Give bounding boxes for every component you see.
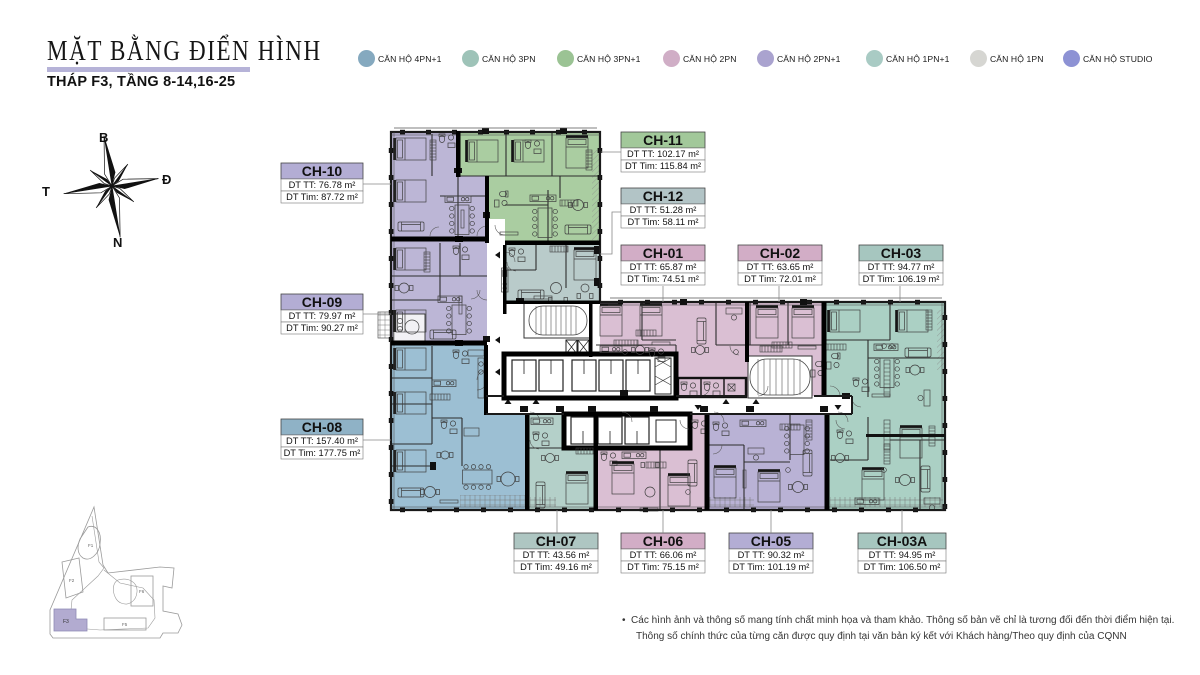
svg-text:DT TT: 94.77 m²: DT TT: 94.77 m² — [868, 262, 935, 272]
svg-text:DT TT: 79.97 m²: DT TT: 79.97 m² — [289, 311, 356, 321]
svg-text:DT TT: 76.78 m²: DT TT: 76.78 m² — [289, 180, 356, 190]
svg-text:DT Tim: 115.84 m²: DT Tim: 115.84 m² — [625, 161, 701, 171]
svg-text:DT Tim: 75.15 m²: DT Tim: 75.15 m² — [627, 562, 699, 572]
svg-text:DT Tim: 87.72 m²: DT Tim: 87.72 m² — [286, 192, 358, 202]
svg-text:N: N — [113, 235, 122, 250]
svg-text:CH-10: CH-10 — [302, 163, 343, 179]
svg-text:DT TT: 102.17 m²: DT TT: 102.17 m² — [627, 149, 699, 159]
svg-text:CH-03A: CH-03A — [877, 533, 928, 549]
svg-text:CH-06: CH-06 — [643, 533, 684, 549]
svg-text:B: B — [99, 130, 108, 145]
svg-text:CH-03: CH-03 — [881, 245, 922, 261]
svg-text:DT Tim: 101.19 m²: DT Tim: 101.19 m² — [733, 562, 810, 572]
svg-text:Đ: Đ — [162, 172, 171, 187]
svg-text:F2: F2 — [69, 578, 75, 583]
svg-text:F1: F1 — [88, 543, 94, 548]
svg-text:DT TT: 51.28 m²: DT TT: 51.28 m² — [630, 205, 697, 215]
svg-text:T: T — [42, 184, 50, 199]
svg-text:F6: F6 — [139, 589, 145, 594]
svg-text:DT Tim: 106.19 m²: DT Tim: 106.19 m² — [863, 274, 940, 284]
svg-text:CH-01: CH-01 — [643, 245, 684, 261]
svg-text:DT Tim: 58.11 m²: DT Tim: 58.11 m² — [628, 217, 699, 227]
svg-text:DT TT: 66.06 m²: DT TT: 66.06 m² — [630, 550, 697, 560]
svg-text:CH-07: CH-07 — [536, 533, 577, 549]
svg-text:DT Tim: 49.16 m²: DT Tim: 49.16 m² — [520, 562, 592, 572]
svg-text:F3: F3 — [63, 619, 69, 625]
svg-text:DT TT: 94.95 m²: DT TT: 94.95 m² — [869, 550, 936, 560]
svg-text:DT TT: 65.87 m²: DT TT: 65.87 m² — [630, 262, 697, 272]
svg-text:DT TT: 157.40 m²: DT TT: 157.40 m² — [286, 436, 358, 446]
svg-text:CH-12: CH-12 — [643, 188, 684, 204]
svg-text:DT Tim: 177.75 m²: DT Tim: 177.75 m² — [284, 448, 361, 458]
svg-text:CH-05: CH-05 — [751, 533, 792, 549]
svg-text:F5: F5 — [122, 622, 128, 627]
svg-text:DT Tim: 106.50 m²: DT Tim: 106.50 m² — [864, 562, 941, 572]
svg-text:CH-09: CH-09 — [302, 294, 343, 310]
svg-text:DT Tim: 74.51 m²: DT Tim: 74.51 m² — [627, 274, 699, 284]
svg-text:CH-11: CH-11 — [643, 132, 683, 148]
svg-text:DT TT: 90.32 m²: DT TT: 90.32 m² — [738, 550, 805, 560]
svg-text:DT Tim: 90.27 m²: DT Tim: 90.27 m² — [286, 323, 358, 333]
svg-text:CH-02: CH-02 — [760, 245, 801, 261]
svg-text:DT TT: 43.56 m²: DT TT: 43.56 m² — [523, 550, 590, 560]
svg-text:DT TT: 63.65 m²: DT TT: 63.65 m² — [747, 262, 814, 272]
svg-text:DT Tim: 72.01 m²: DT Tim: 72.01 m² — [744, 274, 816, 284]
svg-text:CH-08: CH-08 — [302, 419, 343, 435]
